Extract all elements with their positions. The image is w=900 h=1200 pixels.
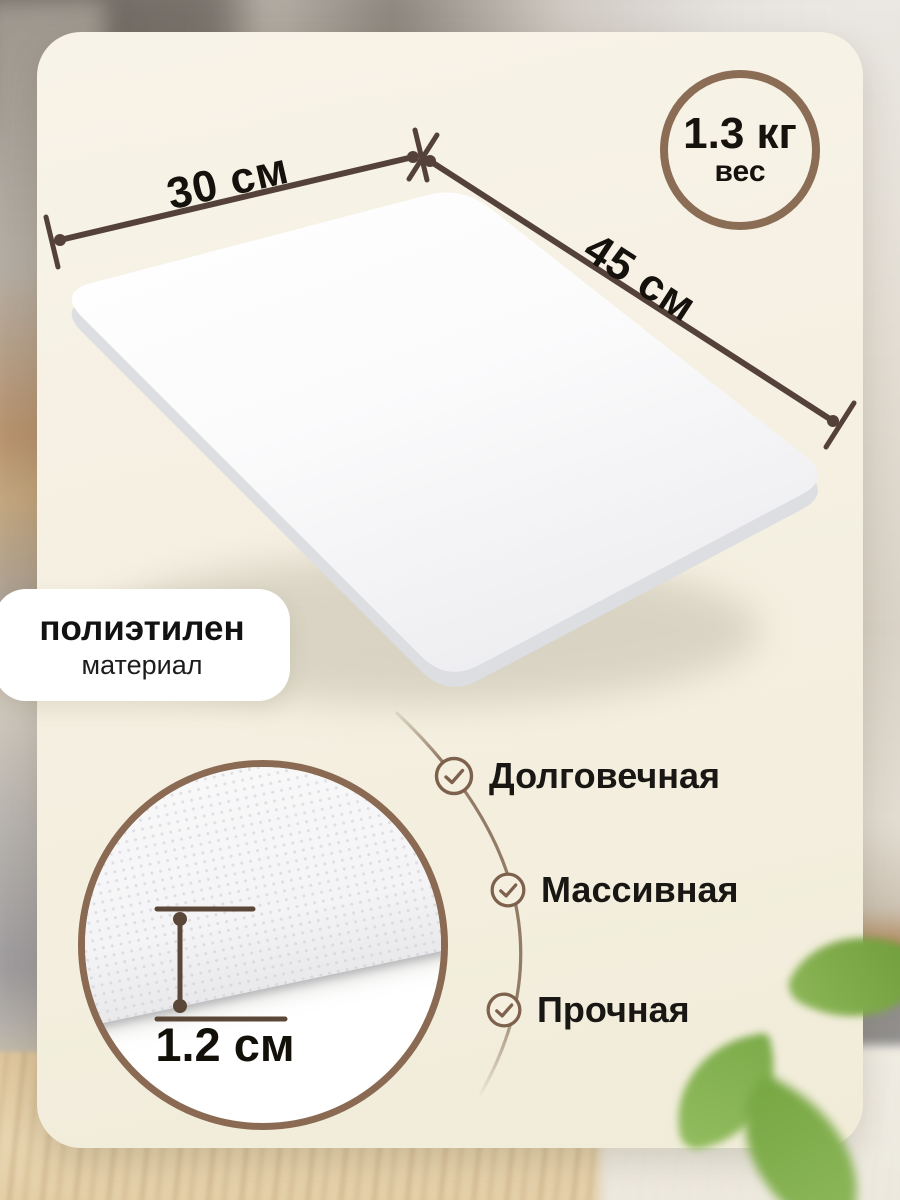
- material-value: полиэтилен: [39, 609, 244, 649]
- feature-item-durable: Долговечная: [433, 755, 720, 797]
- weight-badge: 1.3 кг вес: [660, 70, 820, 230]
- thickness-label: 1.2 см: [145, 1017, 305, 1072]
- material-card: полиэтилен материал: [0, 589, 290, 701]
- product-image: 30 см 45 см 1.3 кг вес полиэтилен матери…: [0, 0, 900, 1200]
- thickness-dimension-line: [85, 767, 448, 1130]
- material-caption: материал: [82, 649, 203, 681]
- weight-value: 1.3 кг: [683, 112, 797, 156]
- feature-label: Прочная: [537, 989, 690, 1031]
- feature-item-massive: Массивная: [489, 869, 739, 911]
- thickness-detail-circle: 1.2 см: [78, 760, 448, 1130]
- check-circle-icon: [489, 871, 527, 909]
- check-circle-icon: [485, 991, 523, 1029]
- feature-label: Долговечная: [489, 755, 720, 797]
- feature-item-strong: Прочная: [485, 989, 690, 1031]
- feature-label: Массивная: [541, 869, 739, 911]
- weight-caption: вес: [714, 156, 765, 188]
